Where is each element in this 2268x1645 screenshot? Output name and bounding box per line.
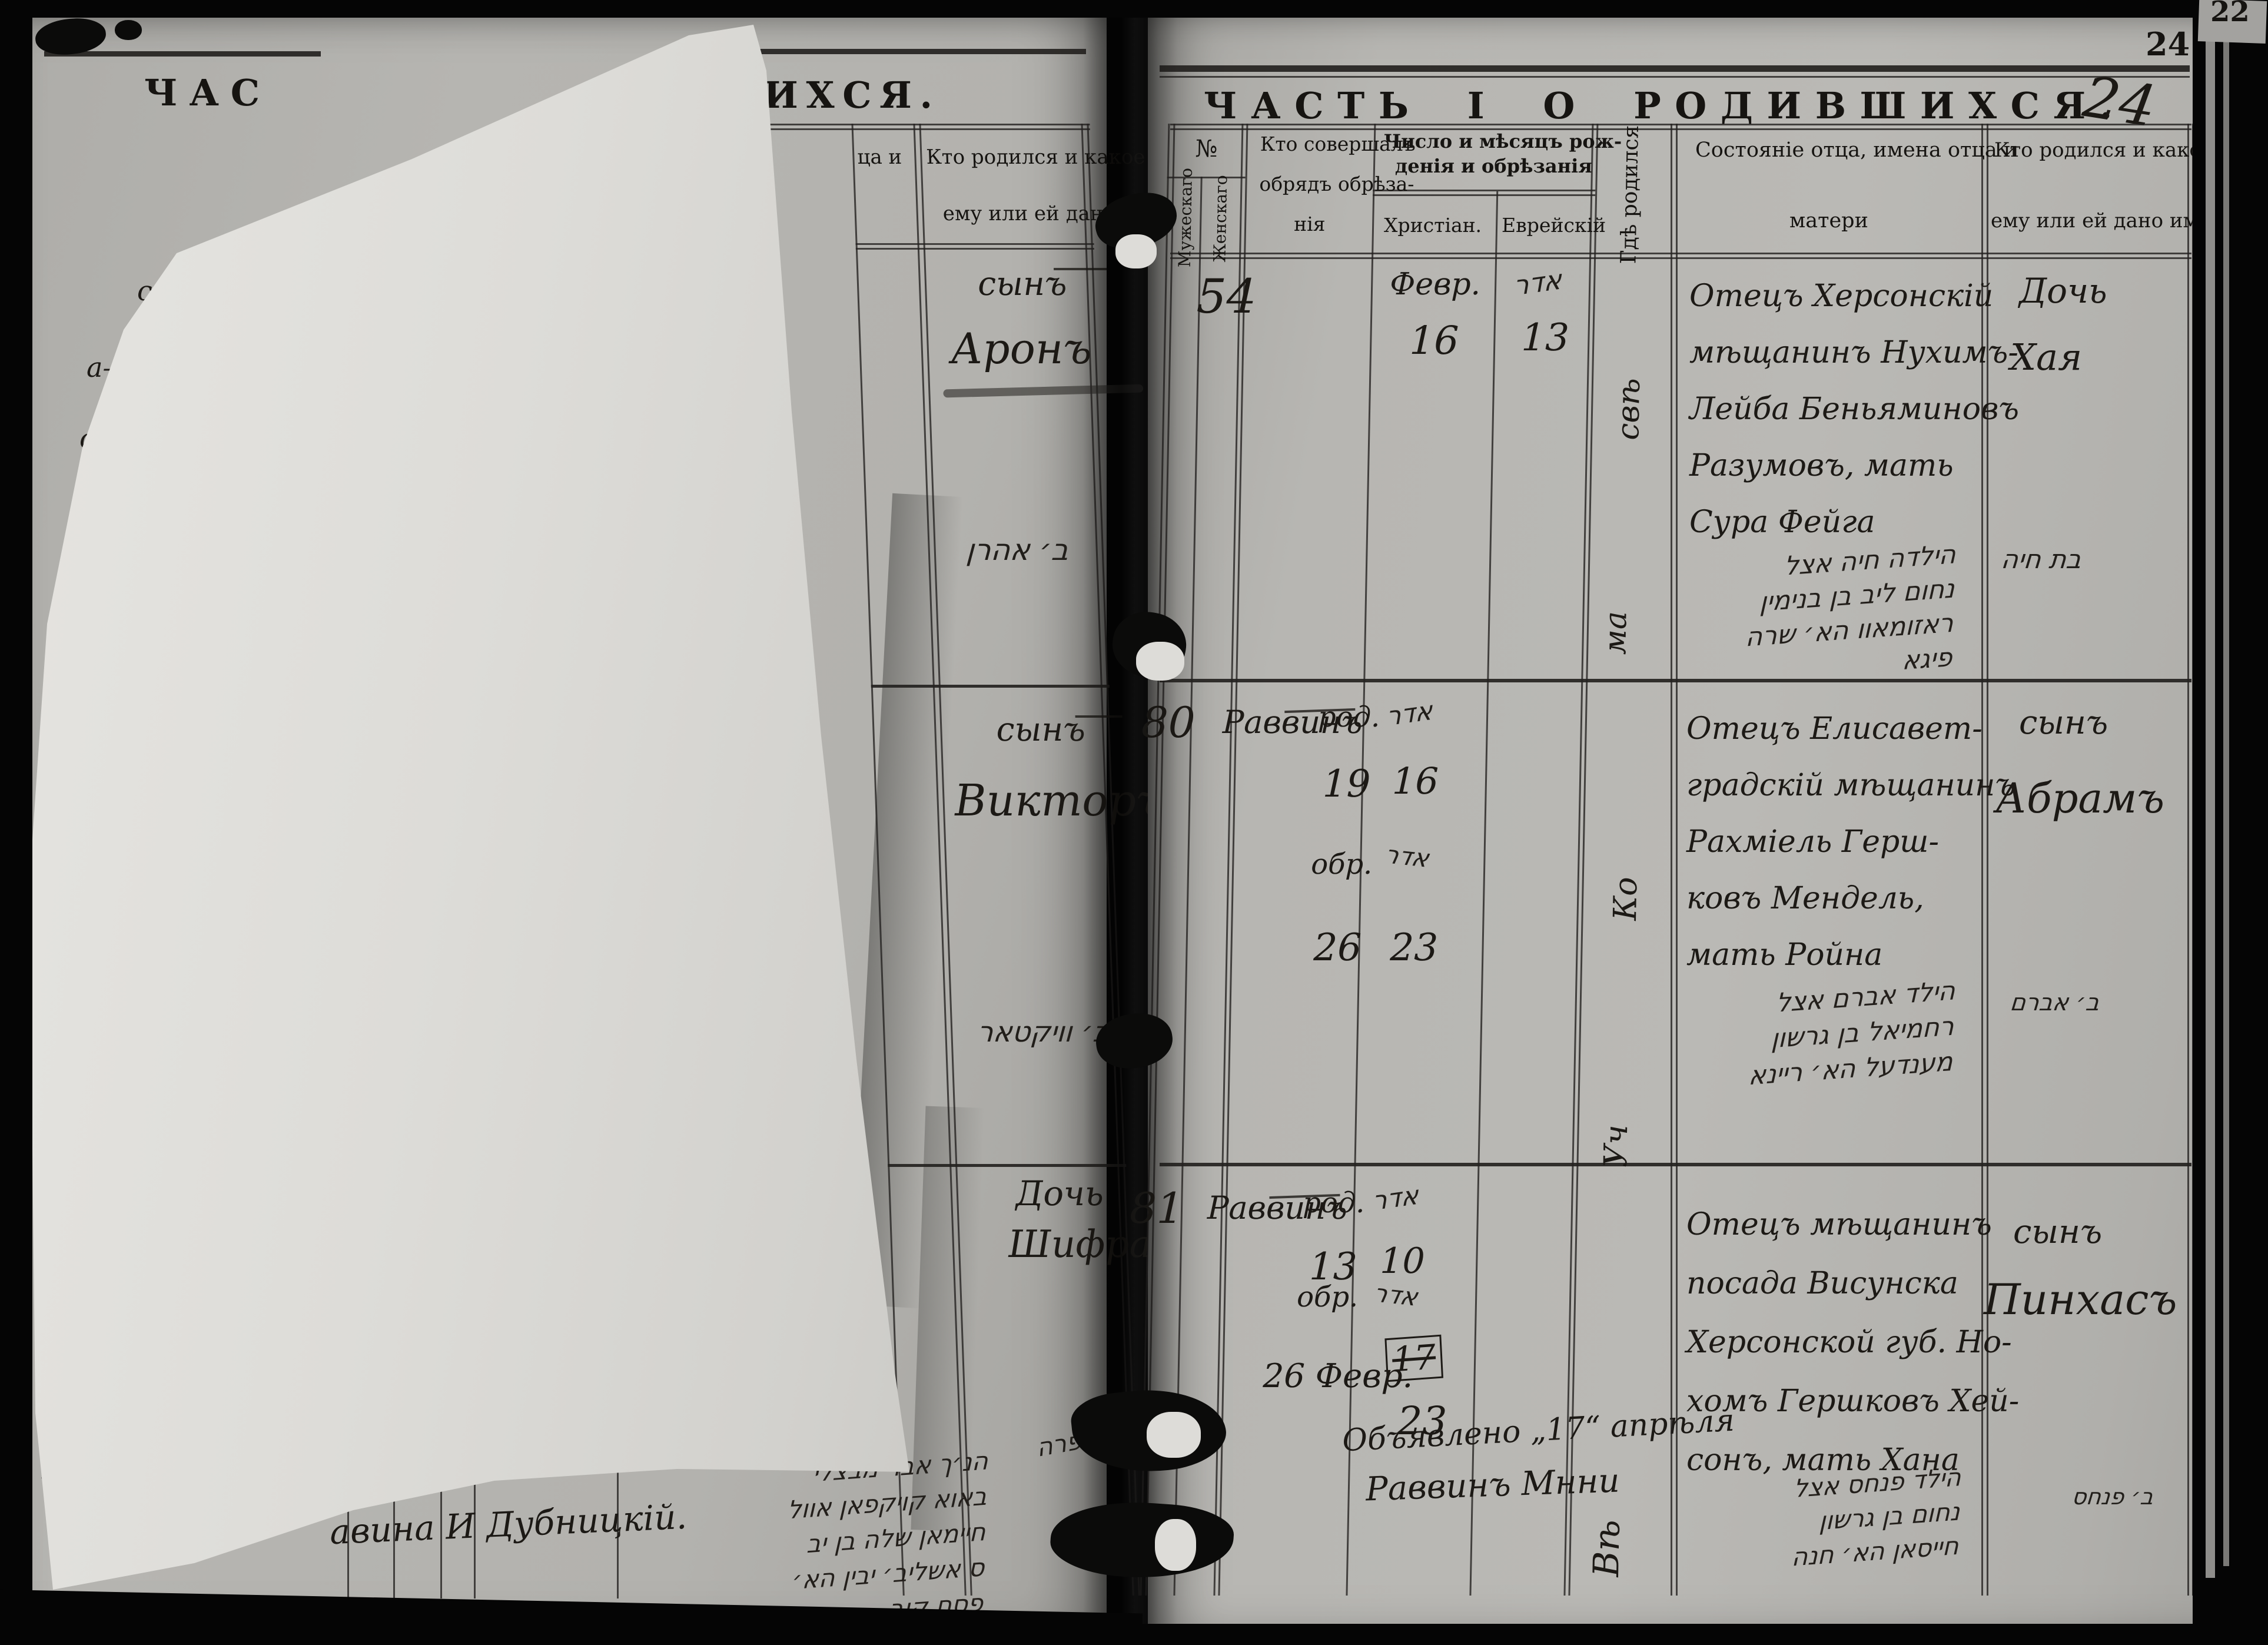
child-name-hebrew: ב׳ פנחס — [2071, 1484, 2155, 1510]
grid-vline — [1671, 124, 1672, 1596]
header-name: ему или ей дано имя — [1991, 209, 2211, 233]
scan-artifact — [115, 20, 142, 40]
grid-vline — [1676, 124, 1678, 1596]
father-line: Отецъ мѣщанинъ — [1686, 1195, 2019, 1254]
child-name-hebrew: ב׳ אברם — [2009, 989, 2101, 1016]
hebrew-record-block: הילד פנחס אצל נחום בן גרשון חייסאן הא׳ ח… — [1711, 1460, 1961, 1580]
scan-edge-bottom — [1118, 1624, 2268, 1645]
father-line: Сура Фейга — [1689, 494, 2019, 550]
child-relation: сынъ — [977, 265, 1067, 303]
next-page-edge — [2223, 35, 2229, 1566]
hebrew-record-block: הילדה חיה אצל נחום ליב בן בנימין ראזומאו… — [1676, 538, 1957, 694]
scan-edge-top — [0, 0, 2268, 18]
child-name-hebrew: ב׳ אהרן — [965, 533, 1070, 567]
father-line: ковъ Мендель, — [1686, 870, 2015, 927]
paper-tear — [1136, 642, 1184, 681]
father-record: Отецъ мѣщанинъ посада Висунска Херсонско… — [1686, 1195, 2019, 1490]
next-page-edge — [2206, 24, 2215, 1578]
paper-tear — [1115, 234, 1157, 268]
father-line: посада Висунска — [1686, 1254, 2019, 1313]
right-page: ЧАСТЬ I О РОДИВШИХСЯ. 24 24 № Мужескаго — [1148, 15, 2201, 1629]
father-line: градскій мѣщанинъ — [1686, 757, 2015, 814]
scan-edge-left — [0, 0, 32, 1645]
child-relation: сынъ — [995, 711, 1085, 749]
register-scan: ЧАС ШИХСЯ. скій а— ой— на Ив мъ лу ца и … — [0, 0, 2268, 1645]
grid-hline — [856, 243, 1094, 245]
father-record: Отецъ Херсонскій мѣщанинъ Нухимъ- Лейба … — [1689, 268, 2019, 550]
father-line: Разумовъ, мать — [1689, 437, 2019, 494]
corner-page-number-fragment: 22 — [2210, 0, 2250, 28]
right-page-columns: Состояніе отца, имена отца и матери Кто … — [1148, 15, 2201, 1629]
father-line: Лейба Беньяминовъ — [1689, 381, 2019, 437]
left-header-father-fragment: ца и — [857, 145, 902, 169]
father-line: Отецъ Херсонскій — [1689, 268, 2019, 324]
grid-vline — [2187, 124, 2189, 1596]
grid-hline — [856, 248, 1094, 250]
child-relation: Дочь — [2019, 271, 2107, 311]
child-relation: сынъ — [2013, 1213, 2102, 1251]
father-line: мѣщанинъ Нухимъ- — [1689, 324, 2019, 381]
father-record: Отецъ Елисавет- градскій мѣщанинъ Рахміе… — [1686, 701, 2015, 983]
child-name: Аронъ — [949, 324, 1092, 373]
hebrew-record-block: הילד אברם אצל רחמיאל בן גרשון מענדעל הא׳… — [1676, 973, 1955, 1099]
child-name-hebrew: בת חיה — [2000, 545, 2083, 575]
scan-edge-right: 22 — [2193, 0, 2268, 1645]
child-name: Хая — [2010, 336, 2082, 379]
father-line: Отецъ Елисавет- — [1686, 701, 2015, 757]
father-line: мать Ройна — [1686, 927, 2015, 983]
header-father: Состояніе отца, имена отца и — [1695, 138, 2017, 162]
header-name: Кто родился и какое — [1994, 138, 2213, 162]
paper-tear — [1147, 1412, 1201, 1458]
father-line: Рахміель Герш- — [1686, 814, 2015, 870]
child-relation: сынъ — [2019, 704, 2108, 742]
header-father: матери — [1789, 209, 1868, 233]
father-line: хомъ Гершковъ Хей- — [1686, 1372, 2019, 1431]
child-name: Абрамъ — [1995, 774, 2164, 822]
paper-tear — [1155, 1519, 1196, 1571]
child-name: Пинхасъ — [1984, 1275, 2177, 1324]
father-line: Херсонской губ. Но- — [1686, 1313, 2019, 1372]
